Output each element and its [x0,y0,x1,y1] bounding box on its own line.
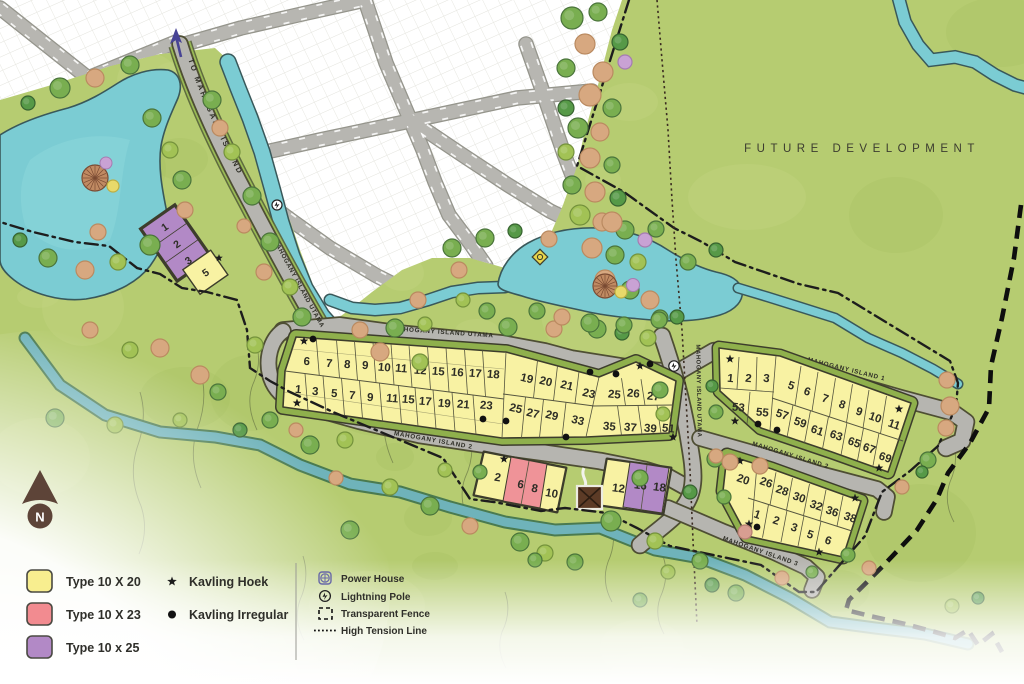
svg-text:3: 3 [312,386,319,399]
svg-text:Transparent Fence: Transparent Fence [341,609,430,620]
svg-text:25: 25 [607,388,622,401]
svg-text:10: 10 [377,361,391,374]
svg-text:17: 17 [418,395,432,408]
svg-text:51: 51 [661,422,676,435]
svg-text:35: 35 [602,420,617,433]
svg-text:Type 10 X 23: Type 10 X 23 [66,608,141,622]
svg-text:Power House: Power House [341,574,405,585]
svg-text:10: 10 [544,487,559,501]
svg-text:18: 18 [486,368,500,381]
svg-text:18: 18 [652,481,667,495]
svg-text:11: 11 [386,393,400,406]
svg-text:17: 17 [468,367,482,380]
svg-text:7: 7 [349,390,356,403]
svg-text:26: 26 [626,387,640,400]
svg-text:6: 6 [303,356,310,369]
svg-text:9: 9 [362,360,369,373]
svg-text:9: 9 [367,392,374,405]
svg-text:21: 21 [456,398,470,411]
svg-text:15: 15 [431,365,445,378]
svg-text:2: 2 [745,373,753,386]
svg-text:High Tension Line: High Tension Line [341,626,427,637]
svg-text:23: 23 [479,399,493,412]
svg-text:FUTURE DEVELOPMENT: FUTURE DEVELOPMENT [744,143,980,155]
svg-text:53: 53 [731,401,745,414]
svg-text:7: 7 [326,358,333,371]
svg-text:16: 16 [450,366,464,379]
svg-text:N: N [35,510,44,525]
svg-text:Type 10 X 20: Type 10 X 20 [66,575,141,589]
svg-text:37: 37 [623,421,637,434]
svg-text:Kavling Irregular: Kavling Irregular [189,608,288,622]
svg-text:19: 19 [437,397,451,410]
svg-text:11: 11 [395,363,409,376]
svg-text:Kavling Hoek: Kavling Hoek [189,575,268,589]
svg-text:Type 10 x 25: Type 10 x 25 [66,641,139,655]
svg-text:55: 55 [755,406,770,419]
svg-text:39: 39 [643,422,657,435]
svg-text:Lightning Pole: Lightning Pole [341,592,411,603]
svg-text:15: 15 [401,393,415,406]
svg-text:3: 3 [763,373,771,386]
svg-text:12: 12 [611,482,625,496]
